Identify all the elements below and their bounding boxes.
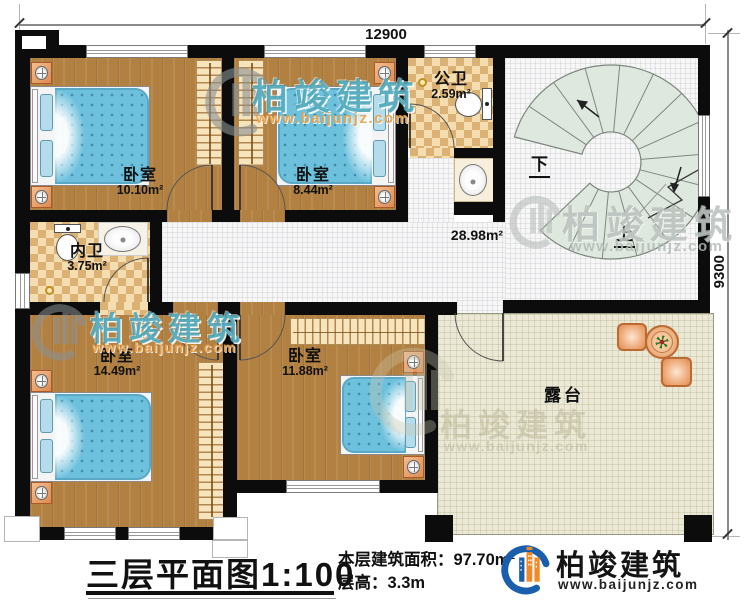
room-area: 3.75m²: [48, 260, 126, 273]
room-area: 8.44m²: [273, 184, 353, 197]
room-name: 露台: [524, 388, 604, 404]
doors-layer: [0, 0, 750, 605]
plan-title: 三层平面图1:100: [86, 548, 355, 596]
room-name: 公卫: [412, 72, 490, 88]
door-arc: [173, 315, 218, 360]
brand-logo-icon: [497, 540, 555, 596]
floor-height-value: 3.3m: [388, 574, 426, 592]
stairs-up-label: 上: [614, 220, 635, 248]
door-arc: [455, 313, 503, 361]
room-label-bedroom-top-left: 卧室 10.10m²: [100, 168, 180, 197]
room-label-inner-bathroom: 内卫 3.75m²: [48, 244, 126, 273]
floorplan-canvas: 12900 9300: [0, 0, 750, 605]
room-name: 卧室: [77, 349, 157, 365]
floor-height-line: 层高：3.3m: [338, 572, 515, 595]
room-area: 2.59m²: [412, 88, 490, 101]
brand-website: www.baijunjz.com: [558, 577, 699, 592]
room-label-bedroom-bottom-mid: 卧室 11.88m²: [265, 349, 345, 378]
stairs-down-label: 下: [529, 150, 550, 178]
room-label-terrace: 露台: [524, 388, 604, 404]
room-name: 内卫: [48, 244, 126, 260]
plan-title-text: 三层平面图: [86, 556, 261, 593]
room-name: 卧室: [100, 168, 180, 184]
room-area: 14.49m²: [77, 365, 157, 378]
room-area: 10.10m²: [100, 184, 180, 197]
room-area: 11.88m²: [265, 365, 345, 378]
room-label-public-bathroom: 公卫 2.59m²: [412, 72, 490, 101]
title-underline-thin: [88, 598, 336, 599]
room-label-bedroom-bottom-left: 卧室 14.49m²: [77, 349, 157, 378]
door-arc: [410, 104, 454, 148]
room-label-bedroom-top-mid: 卧室 8.44m²: [273, 168, 353, 197]
floor-area-label: 本层建筑面积：: [338, 551, 454, 569]
floor-height-label: 层高：: [338, 574, 388, 592]
room-name: 卧室: [265, 349, 345, 365]
room-area: 28.98m²: [437, 229, 517, 242]
room-name: 卧室: [273, 168, 353, 184]
floor-area-line: 本层建筑面积：97.70m²: [338, 549, 515, 572]
room-label-hallway-area: 28.98m²: [437, 229, 517, 242]
plan-info: 本层建筑面积：97.70m² 层高：3.3m: [338, 549, 515, 595]
title-underline: [86, 591, 334, 595]
